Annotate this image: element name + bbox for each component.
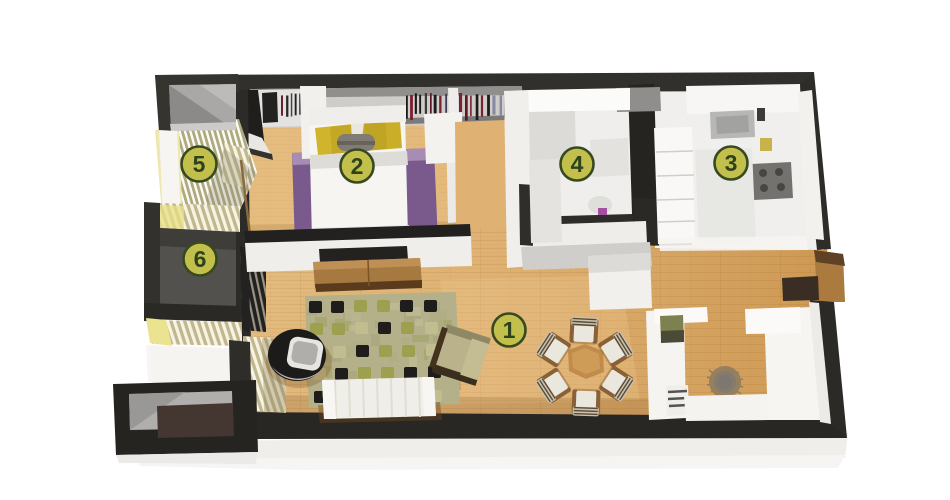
svg-text:1: 1 bbox=[503, 317, 516, 343]
svg-text:6: 6 bbox=[194, 246, 207, 272]
svg-text:5: 5 bbox=[193, 151, 206, 177]
svg-text:2: 2 bbox=[351, 153, 364, 179]
svg-text:3: 3 bbox=[725, 150, 738, 176]
svg-text:4: 4 bbox=[571, 151, 584, 177]
